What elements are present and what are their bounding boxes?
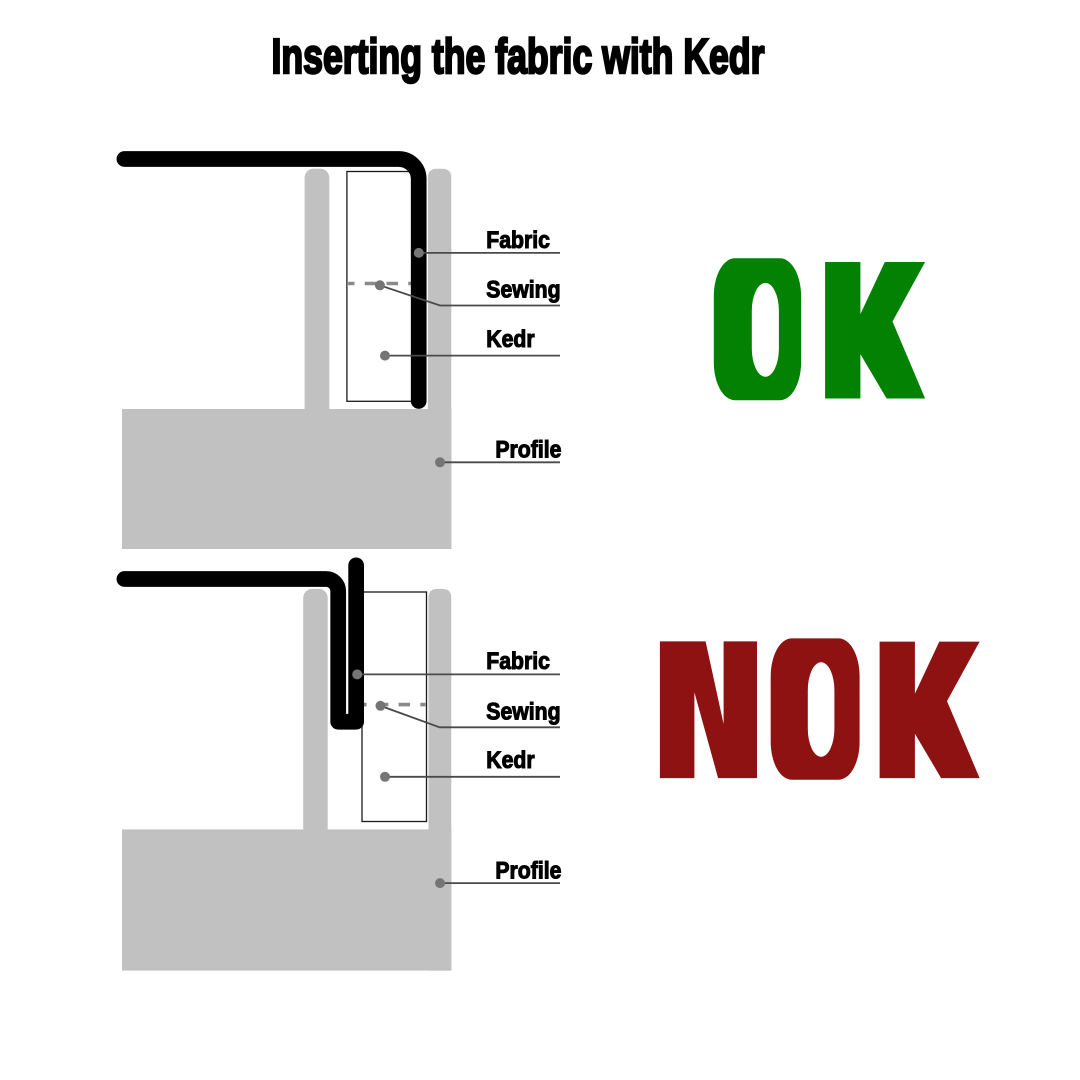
svg-text:Sewing: Sewing	[486, 697, 560, 725]
svg-text:Inserting the fabric with Kedr: Inserting the fabric with Kedr	[271, 29, 764, 84]
svg-text:Fabric: Fabric	[486, 646, 550, 674]
svg-text:Profile: Profile	[495, 435, 561, 463]
svg-text:Profile: Profile	[495, 856, 561, 884]
svg-text:Fabric: Fabric	[486, 226, 550, 254]
svg-text:Kedr: Kedr	[486, 745, 534, 773]
svg-text:Sewing: Sewing	[486, 275, 560, 303]
svg-text:Kedr: Kedr	[486, 325, 534, 353]
